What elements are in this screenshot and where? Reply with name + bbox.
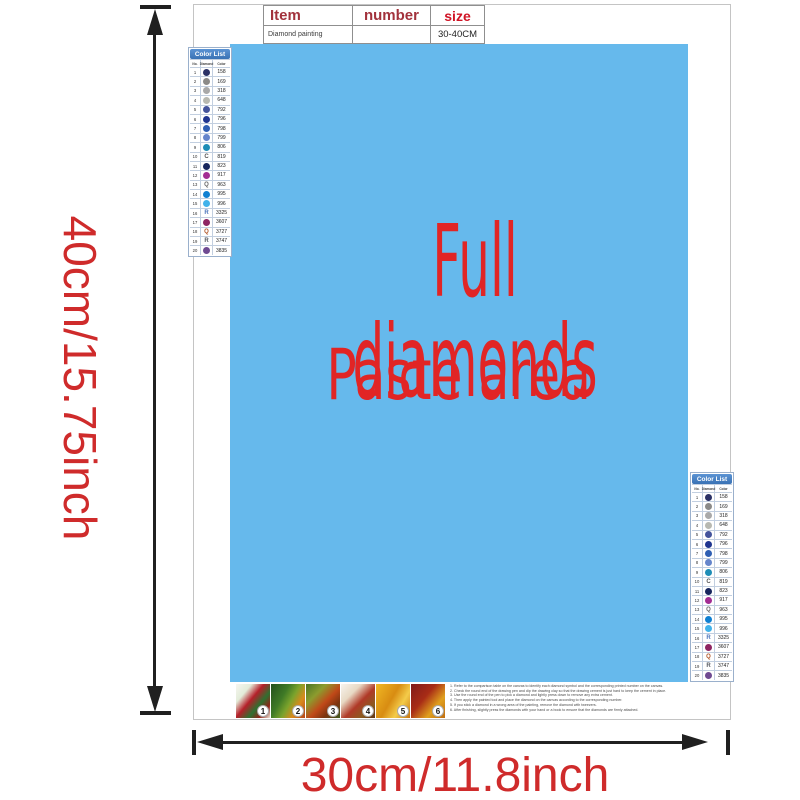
- diamond-color-dot-icon: [203, 134, 210, 141]
- horizontal-dimension-cap-left: [192, 730, 196, 755]
- diamond-color-dot-icon: [705, 597, 712, 604]
- color-list-row: 19R3747: [692, 661, 732, 670]
- diamond-color-dot-icon: [203, 219, 210, 226]
- color-list-row: 15996: [692, 623, 732, 632]
- row-number: 9: [692, 568, 703, 576]
- row-color-code: 3727: [213, 228, 230, 236]
- color-list-row: 2169: [190, 76, 230, 85]
- instruction-line: 6. After finishing, slightly press the d…: [450, 708, 678, 713]
- row-diamond-symbol: [201, 190, 213, 198]
- row-number: 3: [190, 87, 201, 95]
- color-list-left: Color ListNo.DiamondColor115821693318464…: [188, 47, 232, 257]
- row-number: 18: [692, 653, 703, 661]
- diamond-color-dot-icon: [705, 531, 712, 538]
- paste-area-subtitle: Paste area: [230, 340, 688, 410]
- table-header-size: size: [431, 6, 484, 26]
- row-color-code: 798: [213, 124, 230, 132]
- row-color-code: 963: [213, 181, 230, 189]
- step-number-badge: 5: [397, 705, 409, 717]
- row-color-code: 3607: [715, 643, 732, 651]
- step-thumbnail-6: 6: [411, 684, 445, 718]
- color-list-header-row: No.DiamondColor: [692, 484, 732, 492]
- row-number: 2: [190, 77, 201, 85]
- row-number: 19: [190, 237, 201, 245]
- row-diamond-symbol: Q: [703, 653, 715, 661]
- row-number: 16: [692, 634, 703, 642]
- row-color-code: 917: [715, 596, 732, 604]
- color-list-row: 9806: [190, 142, 230, 151]
- horizontal-dimension-line: [215, 741, 690, 744]
- color-list-header-row: No.DiamondColor: [190, 59, 230, 67]
- row-diamond-symbol: C: [703, 578, 715, 586]
- row-diamond-symbol: R: [703, 634, 715, 642]
- color-list-row: 15996: [190, 198, 230, 207]
- row-diamond-symbol: R: [201, 237, 213, 245]
- row-color-code: 318: [715, 512, 732, 520]
- vertical-dimension-line: [153, 28, 156, 692]
- row-diamond-symbol: [201, 106, 213, 114]
- color-list-row: 7798: [692, 548, 732, 557]
- row-color-code: 169: [213, 77, 230, 85]
- diamond-color-dot-icon: [203, 200, 210, 207]
- row-color-code: 3607: [213, 218, 230, 226]
- color-list-row: 14995: [692, 614, 732, 623]
- paste-area: Full diamonds Paste area: [230, 44, 688, 682]
- row-number: 5: [190, 106, 201, 114]
- color-list-title: Color List: [190, 49, 230, 59]
- row-diamond-symbol: [201, 246, 213, 254]
- diamond-color-dot-icon: [203, 163, 210, 170]
- diamond-color-dot-icon: [705, 644, 712, 651]
- row-diamond-symbol: [201, 87, 213, 95]
- diamond-color-dot-icon: [203, 106, 210, 113]
- row-number: 10: [190, 153, 201, 161]
- diamond-color-dot-icon: [705, 503, 712, 510]
- row-diamond-symbol: [703, 624, 715, 632]
- width-dimension-label: 30cm/11.8inch: [240, 748, 670, 800]
- row-number: 5: [692, 531, 703, 539]
- row-number: 13: [692, 606, 703, 614]
- diamond-color-dot-icon: [203, 125, 210, 132]
- row-number: 15: [692, 624, 703, 632]
- row-diamond-symbol: [703, 559, 715, 567]
- arrow-down-icon: [147, 686, 163, 712]
- steps-thumbnails: 123456: [236, 684, 446, 718]
- row-diamond-symbol: [201, 68, 213, 76]
- row-color-code: 823: [715, 587, 732, 595]
- row-diamond-symbol: [703, 512, 715, 520]
- color-list-right: Color ListNo.DiamondColor115821693318464…: [690, 472, 734, 682]
- row-number: 1: [692, 493, 703, 501]
- step-thumbnail-1: 1: [236, 684, 270, 718]
- color-list-row: 13Q963: [692, 605, 732, 614]
- horizontal-dimension-cap-right: [726, 730, 730, 755]
- row-diamond-symbol: [703, 643, 715, 651]
- color-list-row: 6796: [692, 539, 732, 548]
- color-list-row: 10C819: [692, 577, 732, 586]
- diamond-color-dot-icon: [705, 550, 712, 557]
- row-color-code: 799: [715, 559, 732, 567]
- row-diamond-symbol: R: [703, 662, 715, 670]
- row-diamond-symbol: R: [201, 209, 213, 217]
- color-list-row: 5792: [692, 530, 732, 539]
- item-info-table: Item number size Diamond painting 30-40C…: [263, 5, 485, 44]
- row-diamond-symbol: [201, 199, 213, 207]
- row-diamond-symbol: Q: [201, 228, 213, 236]
- color-list-row: 18Q3727: [692, 652, 732, 661]
- diamond-color-dot-icon: [203, 191, 210, 198]
- color-list-row: 12917: [190, 170, 230, 179]
- color-list-row: 203835: [190, 245, 230, 254]
- color-list-row: 18Q3727: [190, 227, 230, 236]
- color-list-row: 13Q963: [190, 180, 230, 189]
- row-diamond-symbol: [201, 143, 213, 151]
- diamond-color-dot-icon: [203, 69, 210, 76]
- color-list-row: 7798: [190, 123, 230, 132]
- color-list-row: 19R3747: [190, 236, 230, 245]
- step-thumbnail-2: 2: [271, 684, 305, 718]
- row-diamond-symbol: [703, 587, 715, 595]
- row-color-code: 169: [715, 502, 732, 510]
- diamond-color-dot-icon: [203, 172, 210, 179]
- row-color-code: 995: [715, 615, 732, 623]
- height-dimension-label: 40cm/15.75inch: [53, 78, 107, 678]
- color-list-column-label: Diamond: [201, 60, 213, 67]
- color-list-row: 1158: [692, 492, 732, 501]
- row-color-code: 3727: [715, 653, 732, 661]
- row-number: 16: [190, 209, 201, 217]
- color-list-row: 173607: [692, 642, 732, 651]
- step-number-badge: 3: [327, 705, 339, 717]
- color-list-row: 12917: [692, 595, 732, 604]
- row-number: 20: [692, 671, 703, 679]
- color-list-column-label: Color: [715, 485, 732, 492]
- row-color-code: 3325: [715, 634, 732, 642]
- row-color-code: 648: [715, 521, 732, 529]
- color-list-title: Color List: [692, 474, 732, 484]
- row-color-code: 823: [213, 162, 230, 170]
- row-diamond-symbol: [703, 531, 715, 539]
- row-color-code: 819: [213, 153, 230, 161]
- row-number: 4: [190, 96, 201, 104]
- diamond-color-dot-icon: [203, 97, 210, 104]
- row-number: 12: [692, 596, 703, 604]
- table-cell-item: Diamond painting: [264, 26, 353, 43]
- color-list-row: 203835: [692, 670, 732, 679]
- diamond-color-dot-icon: [203, 144, 210, 151]
- row-diamond-symbol: [201, 134, 213, 142]
- diamond-color-dot-icon: [705, 522, 712, 529]
- row-number: 9: [190, 143, 201, 151]
- diamond-color-dot-icon: [705, 569, 712, 576]
- row-number: 4: [692, 521, 703, 529]
- row-diamond-symbol: [703, 521, 715, 529]
- row-color-code: 796: [715, 540, 732, 548]
- step-number-badge: 1: [257, 705, 269, 717]
- row-color-code: 996: [715, 624, 732, 632]
- row-number: 1: [190, 68, 201, 76]
- row-number: 3: [692, 512, 703, 520]
- row-color-code: 806: [715, 568, 732, 576]
- row-diamond-symbol: [201, 96, 213, 104]
- row-color-code: 798: [715, 549, 732, 557]
- row-number: 7: [692, 549, 703, 557]
- row-color-code: 963: [715, 606, 732, 614]
- row-number: 11: [190, 162, 201, 170]
- table-header-item: Item: [264, 6, 353, 26]
- row-color-code: 3747: [715, 662, 732, 670]
- row-diamond-symbol: [703, 568, 715, 576]
- row-number: 14: [692, 615, 703, 623]
- color-list-row: 11823: [190, 161, 230, 170]
- arrow-right-icon: [682, 734, 708, 750]
- row-diamond-symbol: C: [201, 153, 213, 161]
- diamond-color-dot-icon: [705, 512, 712, 519]
- row-diamond-symbol: [201, 124, 213, 132]
- row-color-code: 792: [213, 106, 230, 114]
- diamond-painting-size-diagram: Item number size Diamond painting 30-40C…: [0, 0, 800, 800]
- row-diamond-symbol: [201, 218, 213, 226]
- row-color-code: 3835: [715, 671, 732, 679]
- row-color-code: 917: [213, 171, 230, 179]
- color-list-row: 4648: [692, 520, 732, 529]
- color-list-row: 16R3325: [190, 208, 230, 217]
- diamond-color-dot-icon: [705, 494, 712, 501]
- row-number: 19: [692, 662, 703, 670]
- instructions-text: 1. Refer to the comparison table on the …: [450, 684, 678, 712]
- row-color-code: 806: [213, 143, 230, 151]
- row-number: 6: [692, 540, 703, 548]
- row-diamond-symbol: [201, 171, 213, 179]
- diamond-color-dot-icon: [705, 559, 712, 566]
- row-color-code: 318: [213, 87, 230, 95]
- table-cell-number: [353, 26, 431, 43]
- row-color-code: 996: [213, 199, 230, 207]
- table-cell-size: 30-40CM: [431, 26, 484, 43]
- row-diamond-symbol: [201, 77, 213, 85]
- diamond-color-dot-icon: [203, 87, 210, 94]
- step-thumbnail-3: 3: [306, 684, 340, 718]
- color-list-row: 11823: [692, 586, 732, 595]
- color-list-row: 4648: [190, 95, 230, 104]
- row-number: 18: [190, 228, 201, 236]
- step-thumbnail-5: 5: [376, 684, 410, 718]
- row-number: 7: [190, 124, 201, 132]
- color-list-row: 1158: [190, 67, 230, 76]
- row-color-code: 796: [213, 115, 230, 123]
- color-list-row: 6796: [190, 114, 230, 123]
- row-color-code: 3325: [213, 209, 230, 217]
- row-diamond-symbol: [703, 502, 715, 510]
- row-number: 8: [692, 559, 703, 567]
- row-number: 12: [190, 171, 201, 179]
- row-number: 8: [190, 134, 201, 142]
- row-number: 20: [190, 246, 201, 254]
- row-number: 2: [692, 502, 703, 510]
- color-list-row: 16R3325: [692, 633, 732, 642]
- color-list-row: 3318: [692, 511, 732, 520]
- color-list-column-label: Color: [213, 60, 230, 67]
- row-number: 10: [692, 578, 703, 586]
- row-color-code: 819: [715, 578, 732, 586]
- row-diamond-symbol: [703, 549, 715, 557]
- row-diamond-symbol: [703, 615, 715, 623]
- row-number: 17: [692, 643, 703, 651]
- step-thumbnail-4: 4: [341, 684, 375, 718]
- row-number: 13: [190, 181, 201, 189]
- row-diamond-symbol: [703, 671, 715, 679]
- step-number-badge: 4: [362, 705, 374, 717]
- color-list-row: 2169: [692, 501, 732, 510]
- vertical-dimension-cap-bottom: [140, 711, 171, 715]
- row-color-code: 792: [715, 531, 732, 539]
- color-list-row: 14995: [190, 189, 230, 198]
- color-list-row: 8799: [190, 133, 230, 142]
- diamond-color-dot-icon: [203, 247, 210, 254]
- row-diamond-symbol: [703, 493, 715, 501]
- row-color-code: 3747: [213, 237, 230, 245]
- row-diamond-symbol: [703, 540, 715, 548]
- row-diamond-symbol: [201, 115, 213, 123]
- diamond-color-dot-icon: [203, 78, 210, 85]
- row-color-code: 799: [213, 134, 230, 142]
- row-number: 6: [190, 115, 201, 123]
- diamond-color-dot-icon: [705, 616, 712, 623]
- instruction-line: 1. Refer to the comparison table on the …: [450, 684, 678, 689]
- row-diamond-symbol: [703, 596, 715, 604]
- row-color-code: 158: [715, 493, 732, 501]
- row-number: 15: [190, 199, 201, 207]
- diamond-color-dot-icon: [705, 541, 712, 548]
- row-color-code: 158: [213, 68, 230, 76]
- row-number: 17: [190, 218, 201, 226]
- diamond-color-dot-icon: [203, 116, 210, 123]
- row-color-code: 648: [213, 96, 230, 104]
- row-color-code: 3835: [213, 246, 230, 254]
- row-number: 14: [190, 190, 201, 198]
- step-number-badge: 6: [432, 705, 444, 717]
- row-number: 11: [692, 587, 703, 595]
- table-header-number: number: [353, 6, 431, 26]
- diamond-color-dot-icon: [705, 625, 712, 632]
- color-list-row: 9806: [692, 567, 732, 576]
- diamond-color-dot-icon: [705, 588, 712, 595]
- step-number-badge: 2: [292, 705, 304, 717]
- color-list-column-label: Diamond: [703, 485, 715, 492]
- color-list-row: 5792: [190, 105, 230, 114]
- row-diamond-symbol: Q: [703, 606, 715, 614]
- color-list-row: 10C819: [190, 152, 230, 161]
- row-color-code: 995: [213, 190, 230, 198]
- color-list-row: 173607: [190, 217, 230, 226]
- row-diamond-symbol: [201, 162, 213, 170]
- row-diamond-symbol: Q: [201, 181, 213, 189]
- color-list-row: 3318: [190, 86, 230, 95]
- diamond-color-dot-icon: [705, 672, 712, 679]
- color-list-row: 8799: [692, 558, 732, 567]
